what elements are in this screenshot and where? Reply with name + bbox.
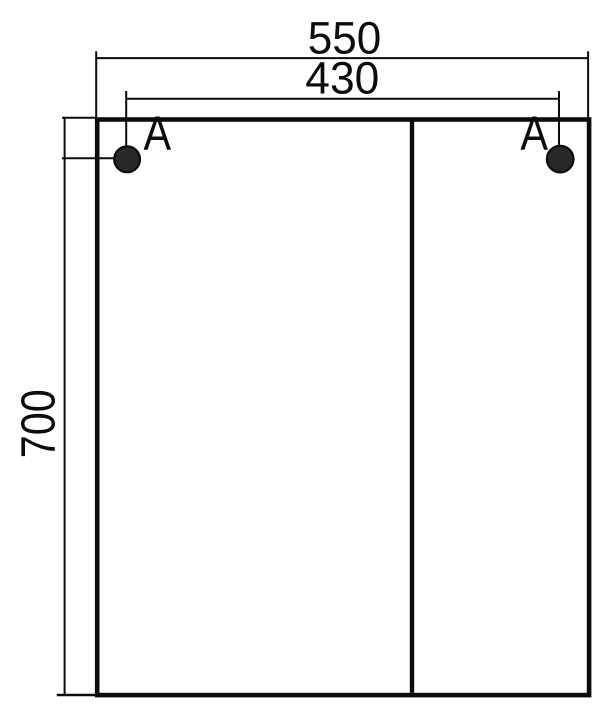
svg-text:430: 430: [305, 53, 379, 104]
svg-text:A: A: [520, 106, 548, 160]
svg-text:A: A: [144, 106, 172, 160]
svg-text:700: 700: [13, 389, 66, 458]
